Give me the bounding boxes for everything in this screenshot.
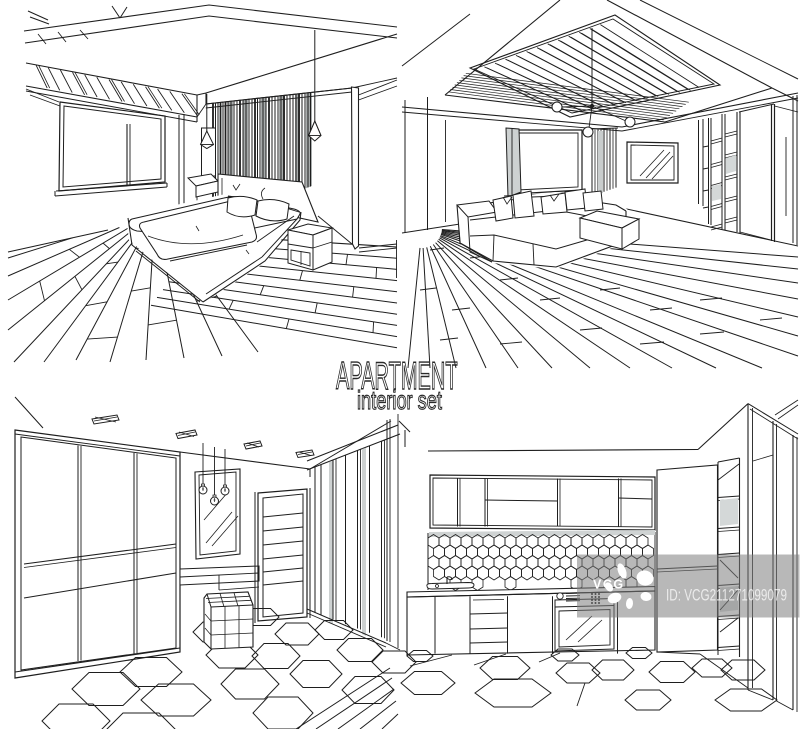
svg-text:interior set: interior set xyxy=(357,386,443,415)
svg-text:ID: VCG211271099079: ID: VCG211271099079 xyxy=(666,587,787,605)
